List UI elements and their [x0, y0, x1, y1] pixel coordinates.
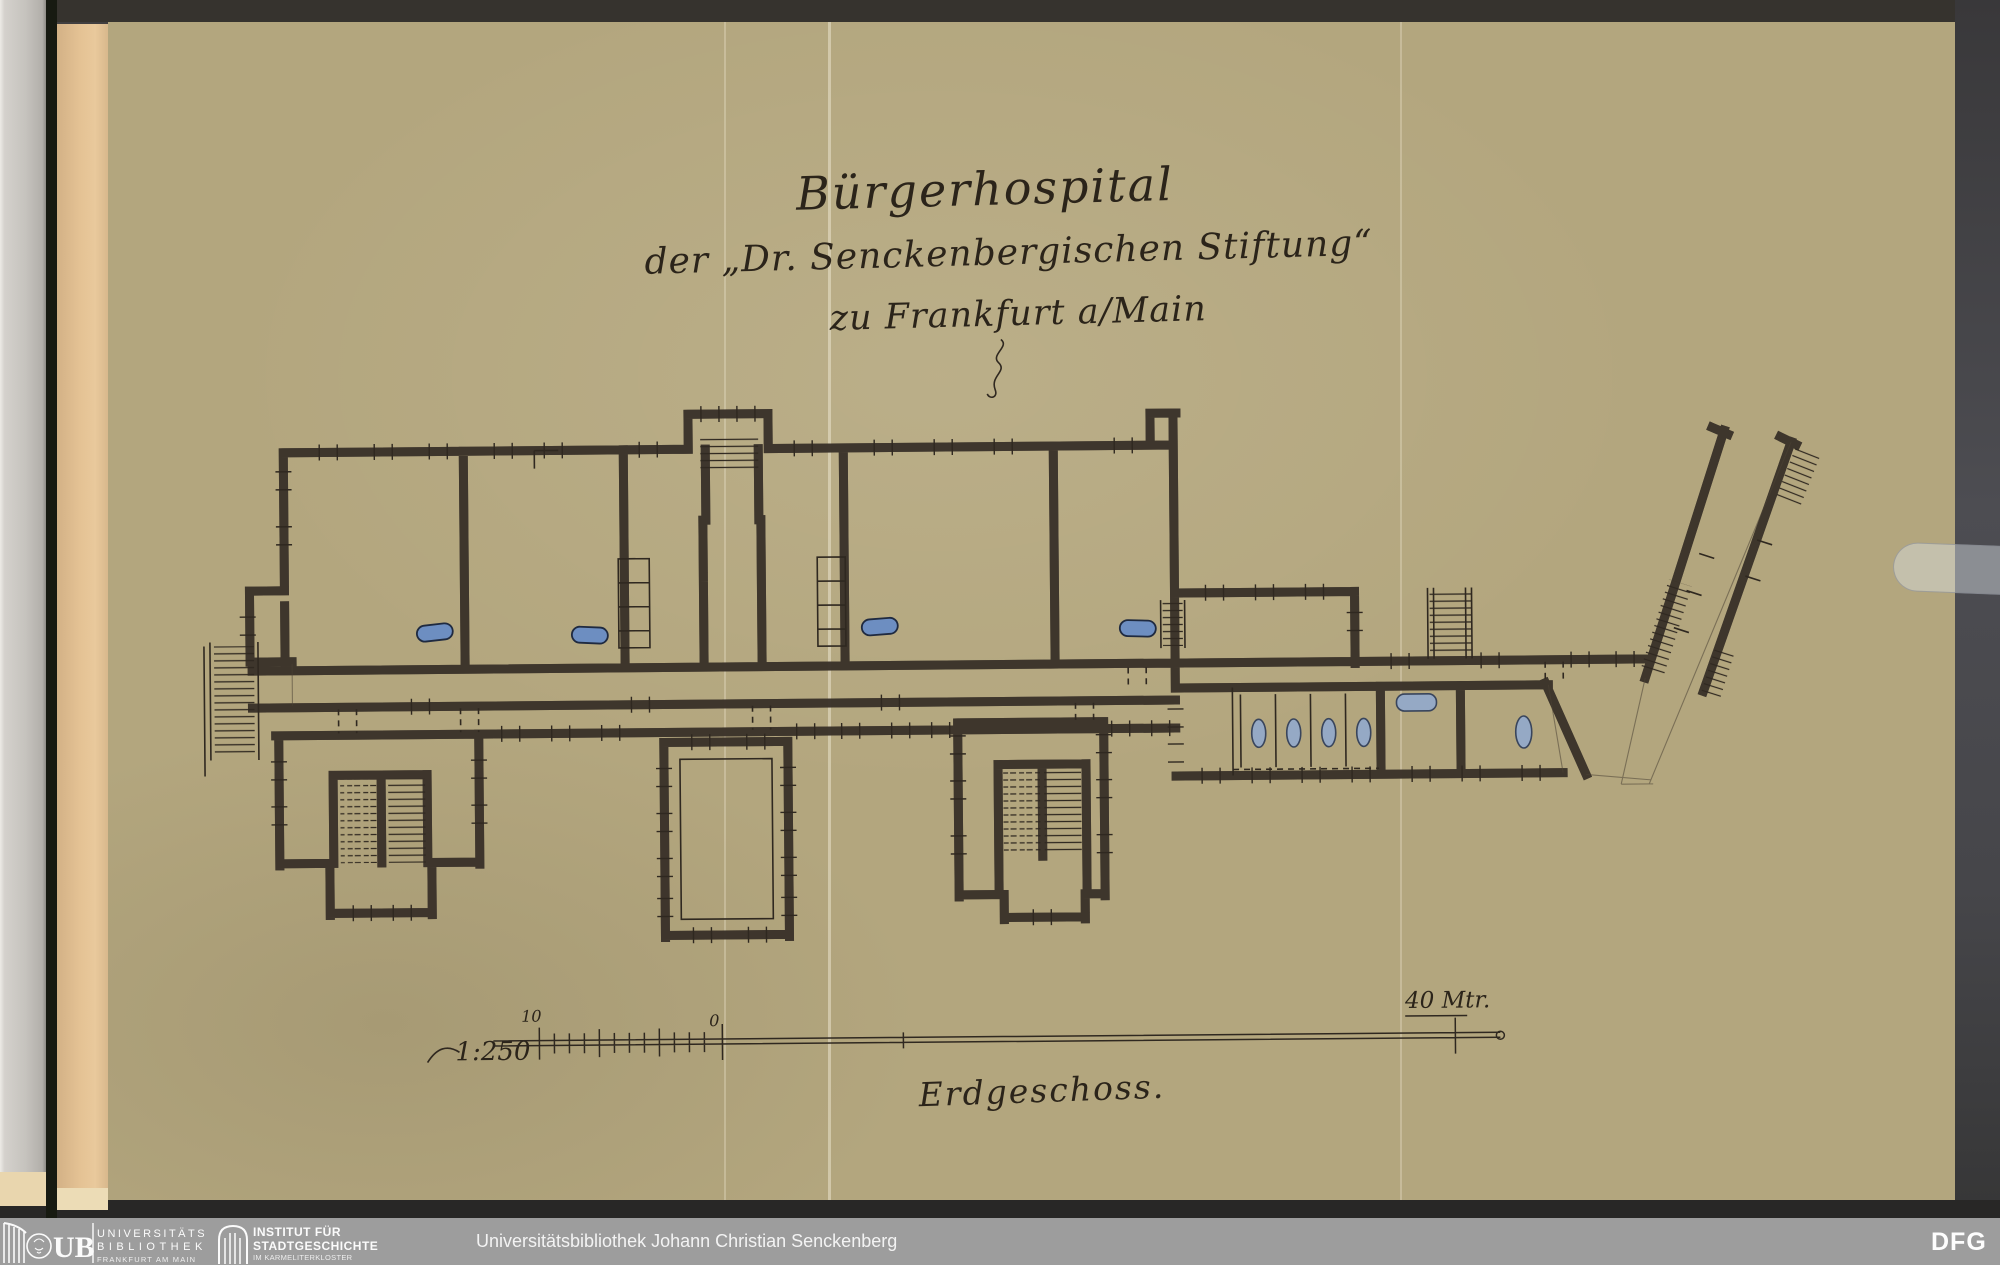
center-wing-stair-flight — [1003, 771, 1041, 852]
floor-plan-drawing: Bürgerhospital der „Dr. Senckenbergische… — [0, 0, 2000, 1265]
toilet-fixture — [1252, 719, 1266, 747]
scale-ruler-end-loop — [1496, 1031, 1504, 1039]
library-footer-banner: UB UNIVERSITÄTS BIBLIOTHEK FRANKFURT AM … — [0, 1218, 2000, 1265]
bathtub — [1396, 694, 1436, 711]
ub-line: FRANKFURT AM MAIN — [97, 1256, 207, 1264]
toilet-fixture — [1322, 719, 1336, 747]
scale-length-label: 40 Mtr. — [1404, 987, 1490, 1014]
plan-title-line-1: Bürgerhospital — [794, 157, 1174, 221]
left-wing-stair-flight — [340, 779, 379, 863]
staircase-hatching — [212, 424, 1824, 864]
ub-line: BIBLIOTHEK — [97, 1242, 207, 1253]
plan-title-line-3: zu Frankfurt a/Main — [828, 289, 1207, 339]
scale-tick-label-0: 0 — [709, 1011, 719, 1030]
ub-library-name: UNIVERSITÄTS BIBLIOTHEK FRANKFURT AM MAI… — [97, 1229, 207, 1264]
tower-stair — [700, 434, 758, 473]
bathtub — [1120, 620, 1156, 637]
floor-label: Erdgeschoss. — [917, 1067, 1166, 1115]
isg-line: STADTGESCHICHTE — [253, 1240, 378, 1252]
angled-wing-stair — [1641, 579, 1692, 674]
bathtub — [861, 617, 898, 636]
ub-frankfurt-logo: UB — [2, 1221, 96, 1265]
title-flourish — [986, 339, 1005, 397]
plan-title-line-2: der „Dr. Senckenbergischen Stiftung“ — [644, 223, 1373, 283]
bathtub — [1516, 716, 1532, 748]
dfg-logo: DFG — [1931, 1228, 1987, 1257]
left-wing-stair-flight — [388, 779, 426, 863]
library-credit-text: Universitätsbibliothek Johann Christian … — [476, 1231, 897, 1252]
bathtub — [572, 626, 609, 644]
ub-abbrev: UB — [53, 1231, 95, 1264]
scale-ruler — [493, 1015, 1500, 1062]
bathtub — [416, 623, 454, 643]
toilet-fixture — [1287, 719, 1301, 747]
isg-line: IM KARMELITERKLOSTER — [253, 1254, 378, 1262]
toilet-fixture — [1357, 718, 1371, 746]
scanned-page: Bürgerhospital der „Dr. Senckenbergische… — [0, 0, 2000, 1265]
institut-stadtgeschichte-name: INSTITUT FÜR STADTGESCHICHTE IM KARMELIT… — [253, 1226, 378, 1265]
small-stair — [1163, 602, 1183, 646]
plan-walls — [248, 405, 1801, 941]
scale-bar: 1:250 10 0 40 Mtr. — [427, 987, 1505, 1067]
institut-stadtgeschichte-logo — [216, 1224, 250, 1264]
isg-line: INSTITUT FÜR — [253, 1226, 378, 1238]
scale-tick-label-10: 10 — [521, 1007, 542, 1026]
title-block: Bürgerhospital der „Dr. Senckenbergische… — [642, 152, 1376, 406]
exterior-stair-left — [214, 646, 255, 756]
ub-line: UNIVERSITÄTS — [97, 1229, 207, 1240]
center-wing-stair-flight — [1044, 771, 1082, 852]
book-weight-paddle — [1892, 542, 2000, 598]
